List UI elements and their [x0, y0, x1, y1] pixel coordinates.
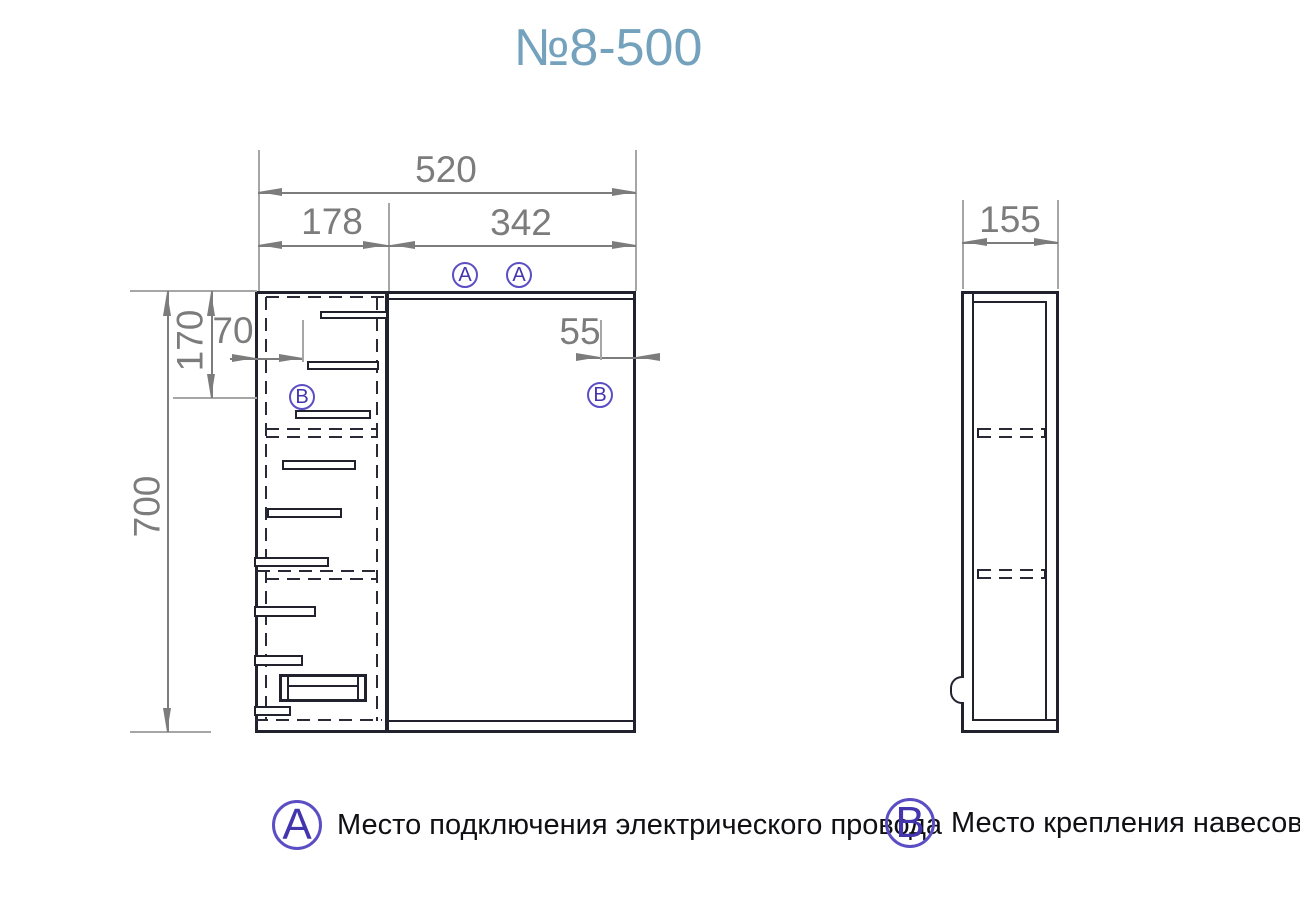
marker-b: В	[289, 384, 315, 410]
arrow-right-icon	[232, 354, 256, 362]
shelf-end-cap	[1044, 428, 1046, 438]
arrow-left-icon	[258, 188, 282, 196]
marker-a-label: А	[458, 264, 471, 287]
dim-label-depth: 155	[960, 201, 1060, 238]
hinge-axis-line	[600, 320, 602, 360]
door-bottom-frame-line	[389, 720, 636, 722]
legend-symbol-a: А	[282, 800, 311, 850]
hidden-shelf-line	[978, 428, 1046, 430]
shelf	[295, 410, 371, 419]
hidden-line	[255, 719, 382, 721]
legend-symbol-b: В	[895, 798, 924, 848]
legend-marker-b: В	[885, 798, 935, 848]
legend-text-a: Место подключения электрического провода	[337, 809, 942, 842]
dim-label-total-width: 520	[396, 151, 496, 188]
marker-a-label: А	[512, 264, 525, 287]
extension-line	[258, 150, 260, 291]
shelf	[307, 361, 379, 370]
dim-label-hinge-left: 70	[203, 312, 263, 349]
hidden-shelf-line	[257, 570, 378, 572]
side-door-back-edge	[972, 294, 974, 721]
hidden-shelf-line	[978, 569, 1046, 571]
dim-label-door-width: 342	[471, 204, 571, 241]
hidden-line	[266, 296, 386, 298]
legend-text-b: Место крепления навесов	[951, 807, 1300, 840]
dim-label-height: 700	[129, 447, 166, 567]
legend-marker-a: А	[272, 800, 322, 850]
shelf	[320, 311, 388, 319]
arrow-left-icon	[636, 353, 660, 361]
technical-drawing: №8-500	[0, 0, 1300, 900]
arrow-down-icon	[163, 708, 171, 732]
arrow-right-icon	[612, 241, 636, 249]
shelf	[254, 557, 329, 567]
shelf-end-cap	[1044, 569, 1046, 579]
marker-a: А	[452, 262, 478, 288]
drawing-title: №8-500	[450, 22, 766, 74]
shelf	[282, 460, 356, 470]
dimension-line-178-342	[258, 245, 636, 247]
tray-edge	[287, 677, 289, 699]
hidden-shelf-line	[266, 578, 378, 580]
arrow-right-icon	[363, 241, 387, 249]
arrow-right-icon	[279, 354, 303, 362]
shelf	[267, 508, 342, 518]
hidden-shelf-line	[266, 436, 378, 438]
hinge-axis-line	[302, 320, 304, 362]
dimension-line-520	[258, 192, 636, 194]
shelf	[254, 706, 291, 716]
marker-a: А	[506, 262, 532, 288]
arrow-left-icon	[391, 241, 415, 249]
side-bottom-panel-line	[972, 719, 1057, 721]
arrow-right-icon	[576, 353, 600, 361]
door-top-frame-line	[389, 298, 636, 300]
arrow-left-icon	[258, 241, 282, 249]
hidden-shelf-line	[978, 436, 1046, 438]
dim-label-left-section: 178	[282, 203, 382, 240]
marker-b-label: В	[295, 386, 308, 409]
extension-line	[388, 203, 390, 291]
shelf	[254, 606, 316, 617]
hidden-shelf-line	[266, 428, 378, 430]
door-handle	[950, 676, 964, 704]
tray-edge	[357, 677, 359, 699]
marker-b: В	[587, 382, 613, 408]
arrow-right-icon	[612, 188, 636, 196]
side-back-wall-line	[1045, 301, 1047, 721]
shelf-end-cap	[977, 428, 979, 438]
marker-b-label: В	[593, 384, 606, 407]
tray-rim-line	[287, 685, 359, 687]
side-top-panel-line	[974, 301, 1047, 303]
hidden-shelf-line	[978, 577, 1046, 579]
bottom-tray	[279, 674, 367, 702]
front-divider	[385, 291, 389, 733]
shelf-end-cap	[977, 569, 979, 579]
shelf	[254, 655, 303, 666]
extension-line	[635, 150, 637, 291]
